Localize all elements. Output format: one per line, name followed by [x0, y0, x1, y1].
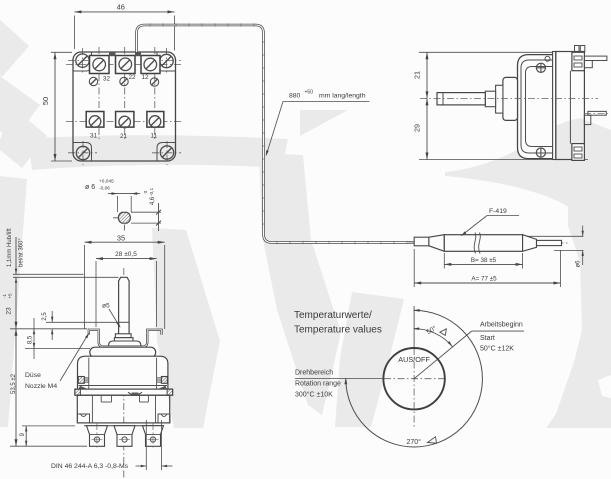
svg-text:300°C ±10K: 300°C ±10K — [295, 391, 333, 399]
svg-text:Temperature values: Temperature values — [294, 325, 382, 336]
svg-text:bei/at 360°: bei/at 360° — [19, 238, 25, 267]
svg-text:+5: +5 — [8, 293, 13, 299]
svg-text:Start: Start — [480, 335, 495, 342]
svg-text:Rotation range: Rotation range — [295, 381, 341, 388]
svg-text:0: 0 — [143, 190, 149, 193]
svg-text:Drehbereich: Drehbereich — [295, 370, 333, 377]
svg-text:270°: 270° — [407, 438, 422, 446]
svg-text:46: 46 — [117, 3, 125, 12]
svg-text:ø5: ø5 — [102, 303, 110, 310]
svg-text:53,5 ±2: 53,5 ±2 — [11, 373, 17, 394]
svg-text:AUS/OFF: AUS/OFF — [398, 355, 430, 364]
svg-text:50: 50 — [41, 97, 50, 105]
svg-text:-0,1: -0,1 — [149, 188, 155, 197]
svg-text:ø 6: ø 6 — [85, 184, 95, 191]
svg-text:9: 9 — [20, 432, 26, 436]
svg-text:mm lang/length: mm lang/length — [319, 93, 366, 100]
svg-text:Temperaturwerte/: Temperaturwerte/ — [294, 310, 372, 321]
svg-text:B= 38 ±5: B= 38 ±5 — [471, 257, 497, 264]
svg-text:-0,06: -0,06 — [99, 186, 110, 192]
svg-text:Düse: Düse — [25, 372, 41, 379]
svg-text:32: 32 — [103, 76, 111, 83]
svg-text:Nozzle M4: Nozzle M4 — [25, 383, 57, 390]
svg-text:1,1mm Hub/lift: 1,1mm Hub/lift — [7, 228, 13, 267]
svg-text:ø6: ø6 — [576, 260, 582, 268]
svg-text:4,6: 4,6 — [150, 196, 156, 205]
svg-text:29: 29 — [413, 124, 422, 132]
svg-text:23: 23 — [6, 307, 13, 315]
svg-text:21: 21 — [413, 71, 422, 79]
svg-text:12: 12 — [142, 74, 150, 81]
svg-text:880: 880 — [289, 93, 301, 100]
svg-text:-1: -1 — [2, 294, 7, 299]
svg-text:+50: +50 — [305, 90, 314, 96]
svg-text:Arbeitsbeginn: Arbeitsbeginn — [480, 322, 523, 329]
svg-text:8,5: 8,5 — [28, 335, 34, 344]
svg-text:2,5: 2,5 — [42, 312, 48, 321]
svg-text:35: 35 — [117, 234, 125, 243]
svg-text:11: 11 — [151, 133, 158, 140]
svg-text:DIN 46 244-A 6,3 -0,8-Ms: DIN 46 244-A 6,3 -0,8-Ms — [51, 463, 129, 470]
svg-text:31: 31 — [90, 133, 98, 140]
svg-text:28 ±0,5: 28 ±0,5 — [115, 251, 137, 258]
svg-text:+0,045: +0,045 — [99, 179, 114, 185]
svg-text:22: 22 — [129, 74, 137, 81]
svg-text:21: 21 — [120, 133, 128, 140]
svg-text:50°C ±12K: 50°C ±12K — [480, 345, 514, 353]
svg-text:F-419: F-419 — [489, 208, 507, 215]
svg-text:50°: 50° — [425, 324, 438, 336]
svg-text:A= 77 ±5: A= 77 ±5 — [471, 275, 497, 282]
